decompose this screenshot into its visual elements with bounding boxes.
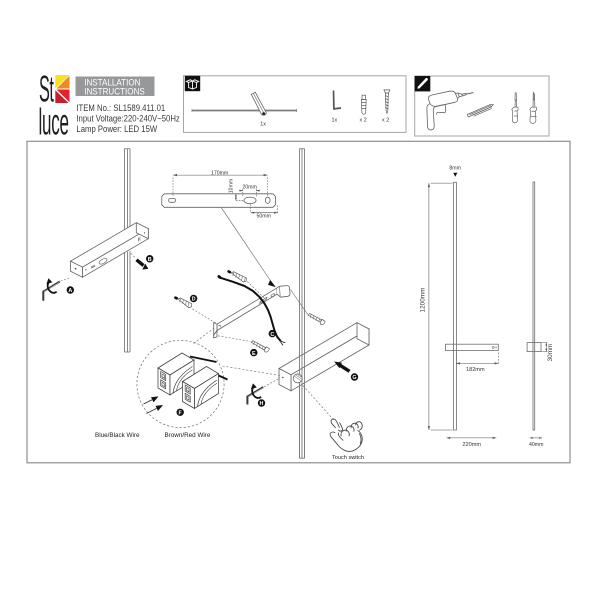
svg-text:Input Voltage:220-240V~50Hz: Input Voltage:220-240V~50Hz	[76, 113, 179, 124]
svg-text:A: A	[68, 288, 72, 294]
svg-text:Brown/Red Wire: Brown/Red Wire	[165, 432, 211, 439]
svg-text:G: G	[352, 375, 356, 381]
svg-text:Blue/Black Wire: Blue/Black Wire	[95, 432, 140, 439]
svg-text:x 2: x 2	[382, 117, 389, 123]
svg-text:Lamp Power: LED 15W: Lamp Power: LED 15W	[76, 124, 157, 135]
svg-text:1200mm: 1200mm	[420, 288, 427, 313]
svg-text:8mm: 8mm	[449, 165, 461, 171]
svg-text:luce: luce	[39, 102, 69, 143]
svg-text:B: B	[148, 257, 152, 263]
svg-text:40mm: 40mm	[529, 442, 543, 448]
svg-text:220mm: 220mm	[462, 442, 481, 448]
svg-text:1x: 1x	[260, 122, 266, 128]
svg-text:170mm: 170mm	[211, 170, 228, 176]
svg-text:D: D	[192, 297, 196, 303]
svg-text:H: H	[260, 401, 264, 407]
svg-text:E: E	[252, 351, 256, 357]
svg-text:Touch switch: Touch switch	[332, 455, 364, 461]
svg-text:20mm: 20mm	[242, 184, 256, 190]
svg-text:C: C	[270, 332, 274, 338]
svg-text:x 2: x 2	[360, 117, 367, 123]
svg-text:1x: 1x	[332, 117, 338, 123]
svg-text:50mm: 50mm	[256, 213, 270, 219]
svg-text:INSTRUCTIONS: INSTRUCTIONS	[84, 86, 145, 97]
svg-text:10mm: 10mm	[229, 179, 235, 193]
svg-text:182mm: 182mm	[466, 367, 485, 373]
svg-text:ITEM No.: SL1589.411.01: ITEM No.: SL1589.411.01	[76, 103, 165, 114]
svg-text:30mm: 30mm	[547, 344, 554, 362]
